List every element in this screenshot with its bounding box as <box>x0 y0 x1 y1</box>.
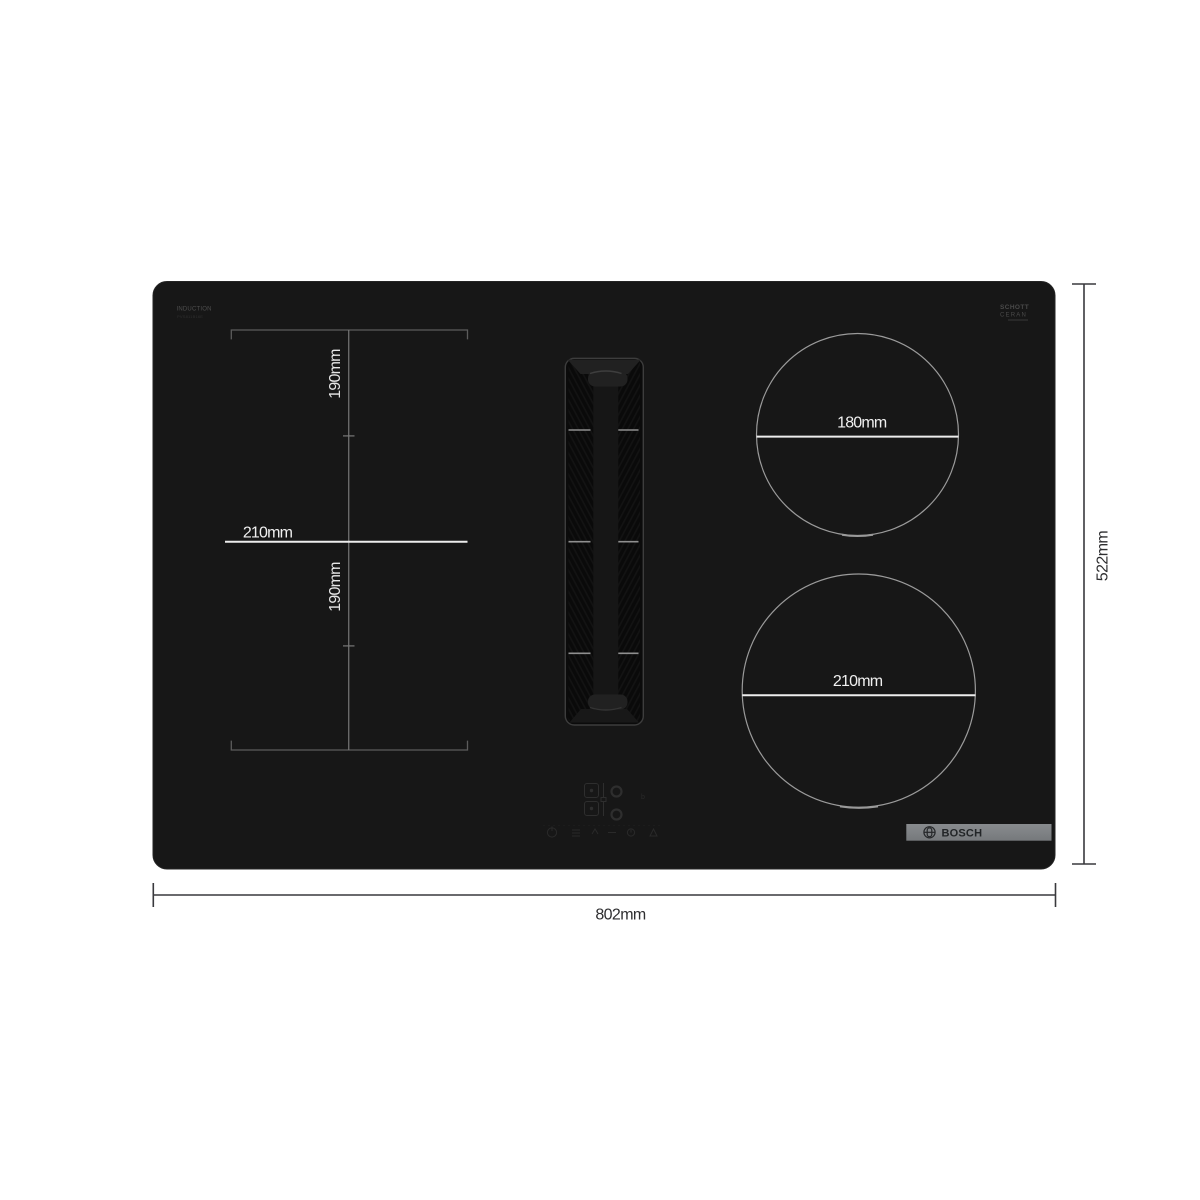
svg-text:522mm: 522mm <box>1095 531 1112 582</box>
svg-text:BOSCH: BOSCH <box>942 827 983 839</box>
svg-text:PVS811B16E: PVS811B16E <box>177 314 203 319</box>
svg-text:180mm: 180mm <box>837 415 887 432</box>
svg-text:190mm: 190mm <box>327 562 344 612</box>
svg-text:802mm: 802mm <box>595 907 646 924</box>
svg-text:190mm: 190mm <box>327 349 344 399</box>
svg-text:INDUCTION: INDUCTION <box>177 307 212 313</box>
svg-text:SCHOTT: SCHOTT <box>1000 304 1029 311</box>
svg-text:210mm: 210mm <box>833 673 883 690</box>
svg-text:b: b <box>641 794 645 801</box>
svg-text:210mm: 210mm <box>243 525 293 542</box>
svg-text:CERAN: CERAN <box>1000 313 1027 319</box>
